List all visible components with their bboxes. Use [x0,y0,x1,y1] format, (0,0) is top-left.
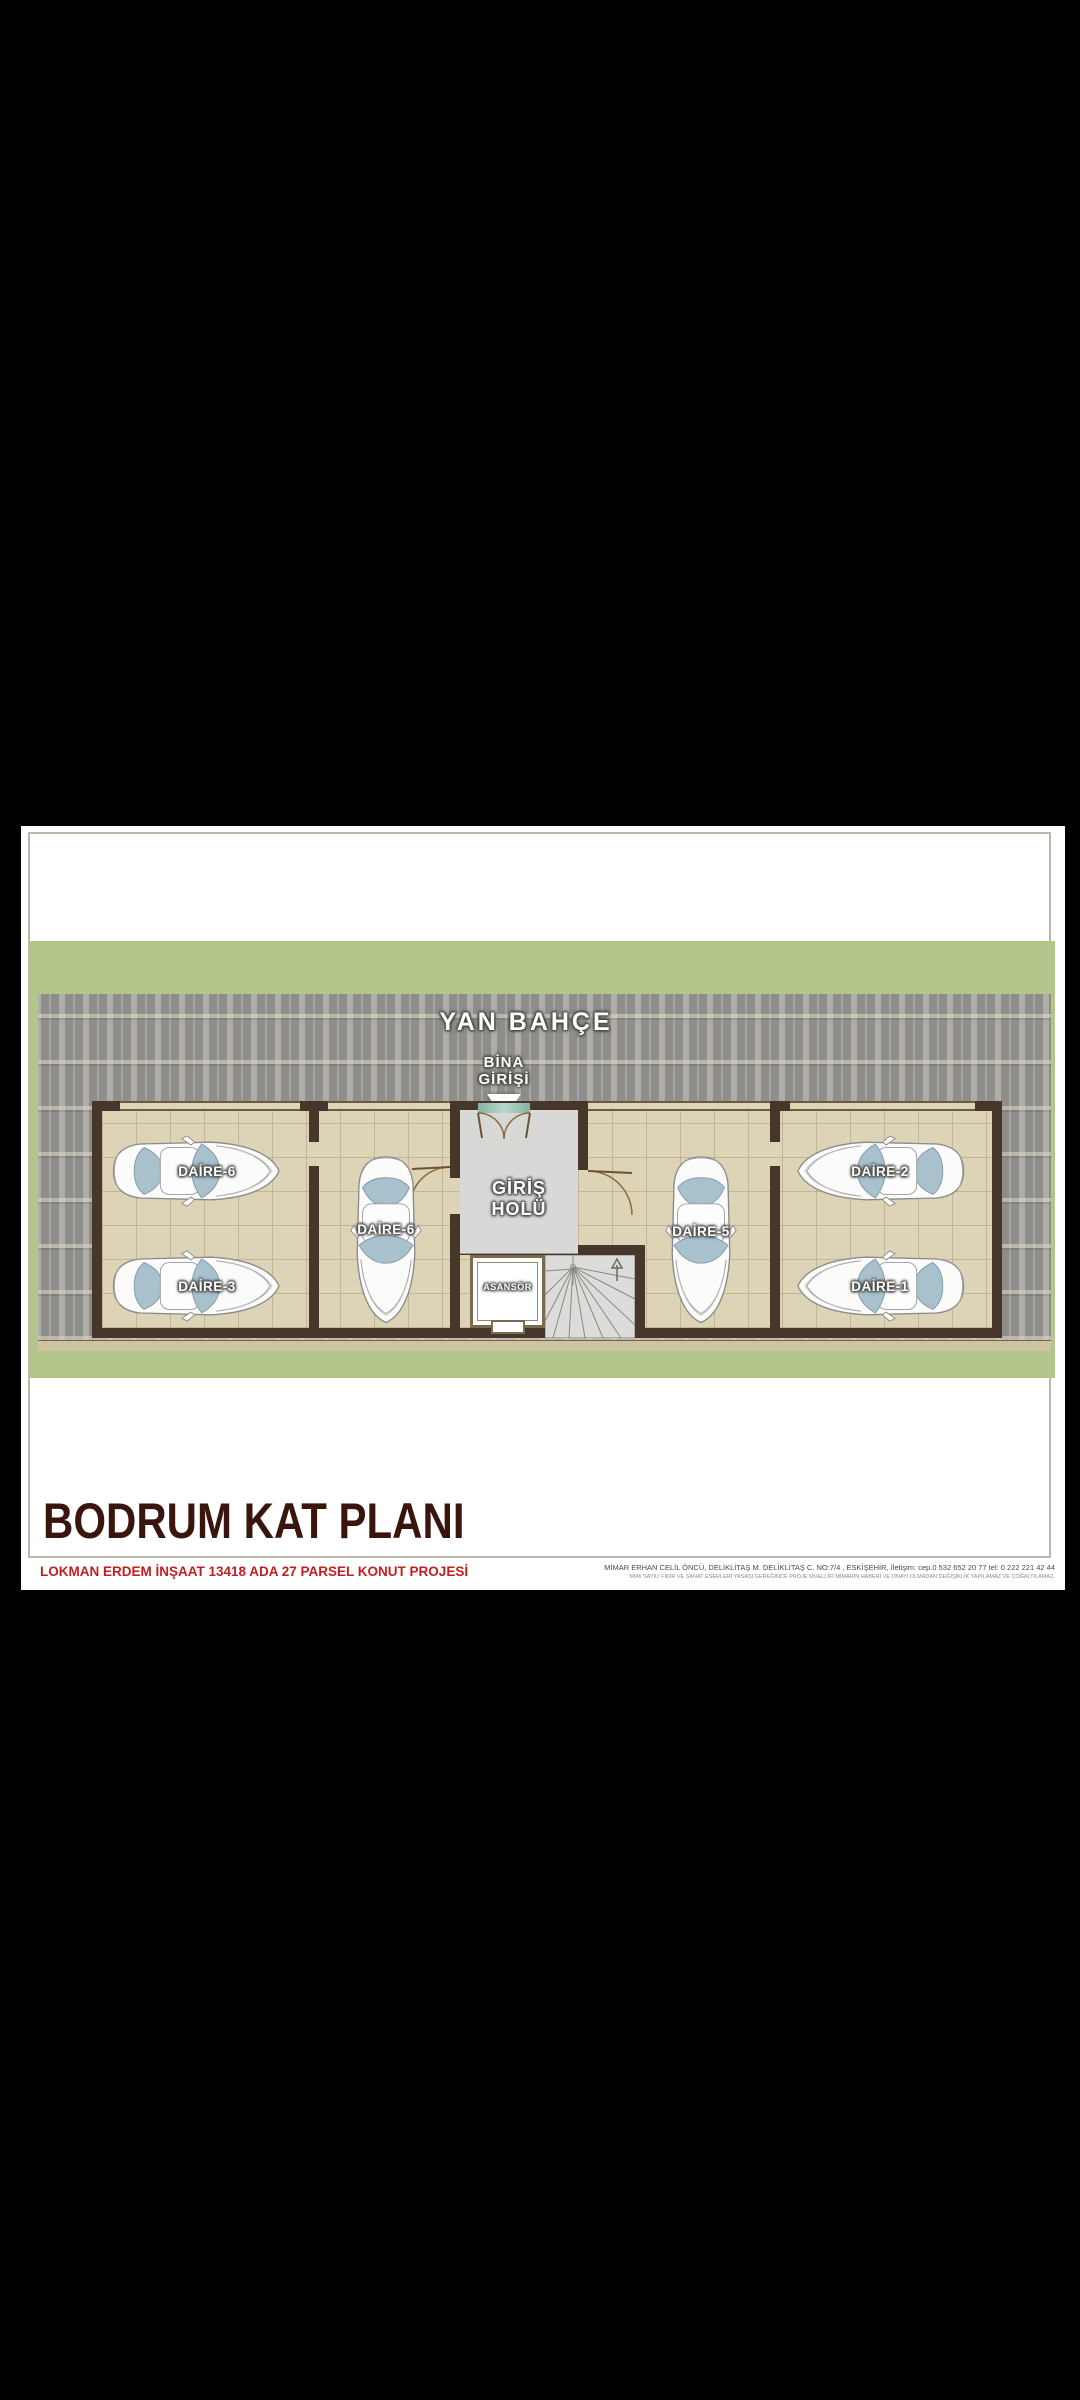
parking-label: DAİRE-3 [152,1279,262,1294]
rear-path [38,1340,1051,1351]
plan-title: BODRUM KAT PLANI [43,1492,465,1550]
elevator-label: ASANSÖR [470,1282,545,1292]
drawing-sheet: YAN BAHÇE BİNA GİRİŞİ GİRİŞ HOLÜ AS [21,826,1065,1590]
elevator-door [491,1320,525,1334]
copyright-disclaimer-line: 5846 SAYILI FİKİR VE SANAT ESERLERİ YASA… [629,1574,1055,1580]
parking-label: DAİRE-2 [825,1164,935,1179]
building-entrance-label: BİNA GİRİŞİ [454,1054,554,1088]
parking-label: DAİRE-6 [152,1164,262,1179]
architect-contact-line: MİMAR ERHAN CELİL ÖNCÜ, DELİKLİTAŞ M. DE… [604,1563,1055,1572]
stairs [545,1255,635,1338]
side-garden-label: YAN BAHÇE [401,1008,651,1037]
parking-label: DAİRE-5 [646,1224,756,1239]
project-title: LOKMAN ERDEM İNŞAAT 13418 ADA 27 PARSEL … [40,1564,468,1579]
parking-label: DAİRE-1 [825,1279,935,1294]
parking-label: DAİRE-6 [331,1222,441,1237]
car-daire-6-mid [350,1145,422,1331]
